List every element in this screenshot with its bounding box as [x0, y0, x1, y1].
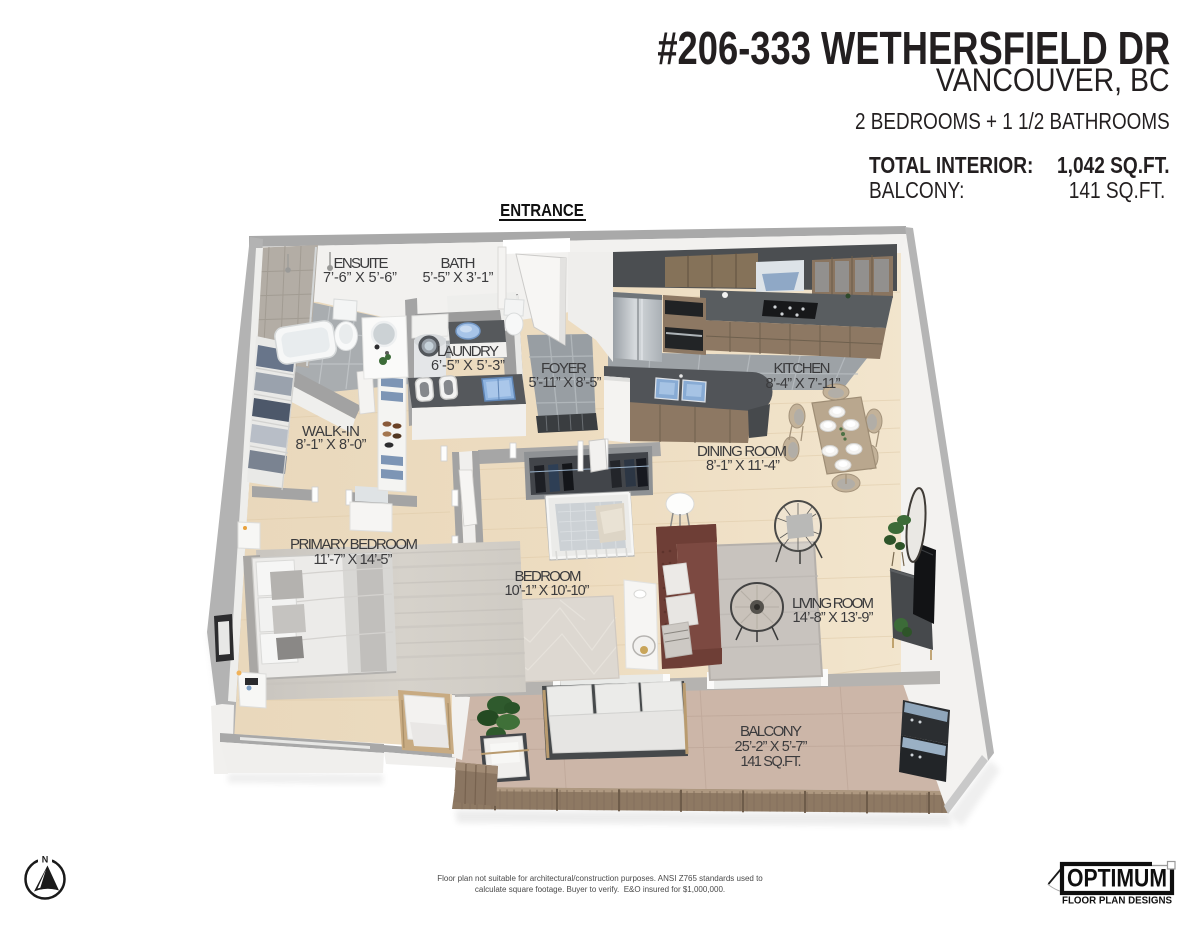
svg-text:10’-1” X 10’-10”: 10’-1” X 10’-10” — [505, 583, 590, 599]
svg-text:6’-5” X 5’-3”: 6’-5” X 5’-3” — [431, 358, 505, 374]
svg-text:8’-1” X 8’-0”: 8’-1” X 8’-0” — [296, 437, 367, 453]
svg-text:FLOOR PLAN DESIGNS: FLOOR PLAN DESIGNS — [1062, 895, 1172, 907]
svg-text:14’-8” X 13’-9”: 14’-8” X 13’-9” — [793, 610, 874, 626]
svg-text:N: N — [42, 855, 49, 865]
svg-text:PRIMARY BEDROOM: PRIMARY BEDROOM — [290, 536, 418, 553]
svg-text:KITCHEN: KITCHEN — [774, 360, 831, 377]
svg-text:5’-11” X 8’-5”: 5’-11” X 8’-5” — [529, 375, 602, 391]
svg-text:141 SQ.FT.: 141 SQ.FT. — [741, 754, 802, 770]
svg-text:BALCONY: BALCONY — [740, 723, 802, 740]
svg-text:7’-6” X 5’-6”: 7’-6” X 5’-6” — [323, 270, 397, 286]
svg-text:11’-7” X 14’-5”: 11’-7” X 14’-5” — [314, 552, 393, 568]
svg-text:OPTIMUM: OPTIMUM — [1067, 865, 1167, 893]
svg-text:5’-5” X 3’-1”: 5’-5” X 3’-1” — [423, 270, 494, 286]
svg-text:8’-4” X 7’-11”: 8’-4” X 7’-11” — [766, 376, 841, 392]
svg-text:25’-2” X 5’-7”: 25’-2” X 5’-7” — [735, 739, 808, 755]
svg-text:8’-1” X 11’-4”: 8’-1” X 11’-4” — [706, 458, 780, 474]
